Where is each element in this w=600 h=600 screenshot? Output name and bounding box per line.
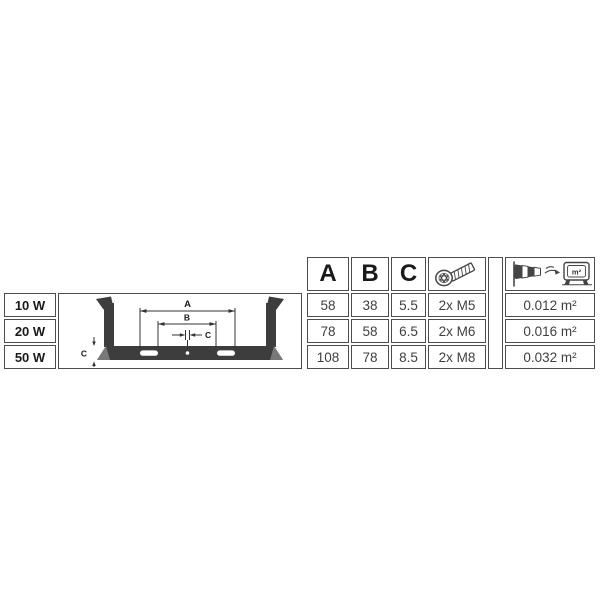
value-b-20w: 58 xyxy=(351,319,389,343)
spacer-column xyxy=(488,257,503,369)
value-a-50w: 108 xyxy=(307,345,349,369)
value-a-10w: 58 xyxy=(307,293,349,317)
table-row: 10 W xyxy=(4,293,302,317)
dim-b-label: B xyxy=(184,313,190,323)
bracket-base xyxy=(97,346,283,360)
value-windload-10w: 0.012 m² xyxy=(505,293,595,317)
value-windload-20w: 0.016 m² xyxy=(505,319,595,343)
wattage-label-20w: 20 W xyxy=(4,319,56,343)
bracket-drawing: A B C C xyxy=(59,294,301,368)
screw-icon xyxy=(430,259,484,289)
value-windload-50w: 0.032 m² xyxy=(505,345,595,369)
wattage-label-50w: 50 W xyxy=(4,345,56,369)
wattage-label-10w: 10 W xyxy=(4,293,56,317)
column-header-wind-load: m² xyxy=(505,257,595,291)
column-header-c: C xyxy=(391,257,426,291)
value-c-20w: 6.5 xyxy=(391,319,426,343)
dimension-spec-table: A B C xyxy=(305,255,597,371)
header-row: A B C xyxy=(307,257,595,291)
value-a-20w: 78 xyxy=(307,319,349,343)
screw-head xyxy=(436,270,452,285)
bracket-right-arm xyxy=(266,303,276,347)
bracket-right-slot xyxy=(217,350,235,355)
dim-a-label: A xyxy=(184,299,191,310)
dim-c-hole-label: C xyxy=(205,330,211,340)
table-row: 108 78 8.5 2x M8 0.032 m² xyxy=(307,345,595,369)
floodlight-icon: m² xyxy=(562,263,592,285)
wind-arrow-icon xyxy=(545,267,560,275)
value-screws-20w: 2x M6 xyxy=(428,319,486,343)
column-header-a: A xyxy=(307,257,349,291)
value-c-10w: 5.5 xyxy=(391,293,426,317)
bracket-left-arm xyxy=(104,303,114,347)
windsock-icon xyxy=(514,264,541,279)
square-meter-unit-label: m² xyxy=(572,267,582,276)
table-row: 58 38 5.5 2x M5 0.012 m² xyxy=(307,293,595,317)
dim-c-thickness-label: C xyxy=(81,349,87,359)
value-b-50w: 78 xyxy=(351,345,389,369)
column-header-b: B xyxy=(351,257,389,291)
value-screws-10w: 2x M5 xyxy=(428,293,486,317)
wattage-variant-table: 10 W xyxy=(2,291,304,371)
mounting-bracket-dimension-diagram: A B C C xyxy=(58,293,302,369)
value-b-10w: 38 xyxy=(351,293,389,317)
wind-load-icon: m² xyxy=(507,259,593,289)
datasheet-page: 10 W xyxy=(0,0,600,600)
value-screws-50w: 2x M8 xyxy=(428,345,486,369)
bracket-left-slot xyxy=(140,350,158,355)
column-header-screw xyxy=(428,257,486,291)
bracket-center-hole xyxy=(186,351,190,355)
value-c-50w: 8.5 xyxy=(391,345,426,369)
table-row: 78 58 6.5 2x M6 0.016 m² xyxy=(307,319,595,343)
